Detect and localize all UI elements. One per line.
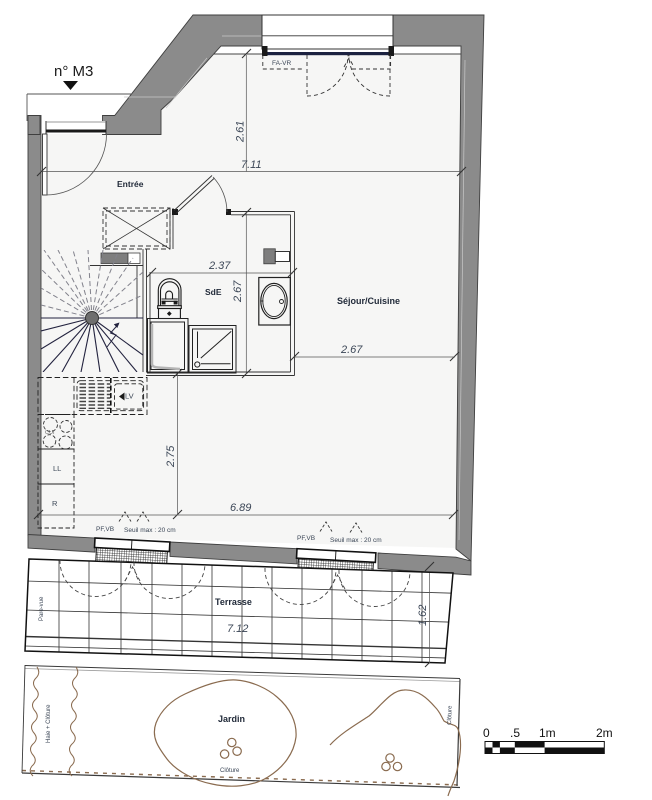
svg-text:2.75: 2.75 <box>165 445 177 468</box>
svg-text:n° M3: n° M3 <box>54 63 93 80</box>
svg-text:SdE: SdE <box>205 287 222 297</box>
svg-text:Pare-vue: Pare-vue <box>39 596 45 621</box>
svg-text:6.89: 6.89 <box>230 502 251 514</box>
svg-text:2.37: 2.37 <box>208 260 231 272</box>
svg-text:2m: 2m <box>596 726 613 740</box>
svg-text:Seuil max : 20 cm: Seuil max : 20 cm <box>124 527 176 534</box>
svg-text:R: R <box>52 499 58 508</box>
svg-text:Jardin: Jardin <box>218 714 245 724</box>
svg-text:2.67: 2.67 <box>232 280 244 303</box>
svg-text:LV: LV <box>125 392 134 401</box>
svg-text:2.61: 2.61 <box>235 121 247 143</box>
svg-text:Seuil max : 20 cm: Seuil max : 20 cm <box>330 537 382 544</box>
svg-text:7.11: 7.11 <box>241 159 262 171</box>
svg-text:Clôture: Clôture <box>220 768 240 774</box>
svg-text:0: 0 <box>483 726 490 740</box>
svg-text:Séjour/Cuisine: Séjour/Cuisine <box>337 296 400 306</box>
svg-text:.5: .5 <box>510 726 520 740</box>
svg-text:Clôture: Clôture <box>447 705 454 725</box>
svg-text:PF,VB: PF,VB <box>96 526 114 533</box>
svg-text:LL: LL <box>53 464 61 473</box>
svg-text:1.62: 1.62 <box>417 605 429 626</box>
svg-text:7.12: 7.12 <box>227 623 248 635</box>
svg-text:FA-VR: FA-VR <box>272 60 291 67</box>
svg-text:Haie + Clôture: Haie + Clôture <box>46 704 52 743</box>
svg-text:Entrée: Entrée <box>117 179 144 189</box>
svg-text:Terrasse: Terrasse <box>215 597 252 607</box>
svg-text:CUI: CUI <box>45 430 55 436</box>
svg-text:2.67: 2.67 <box>340 344 363 356</box>
svg-text:1m: 1m <box>539 726 556 740</box>
svg-text:PF,VB: PF,VB <box>297 535 315 542</box>
